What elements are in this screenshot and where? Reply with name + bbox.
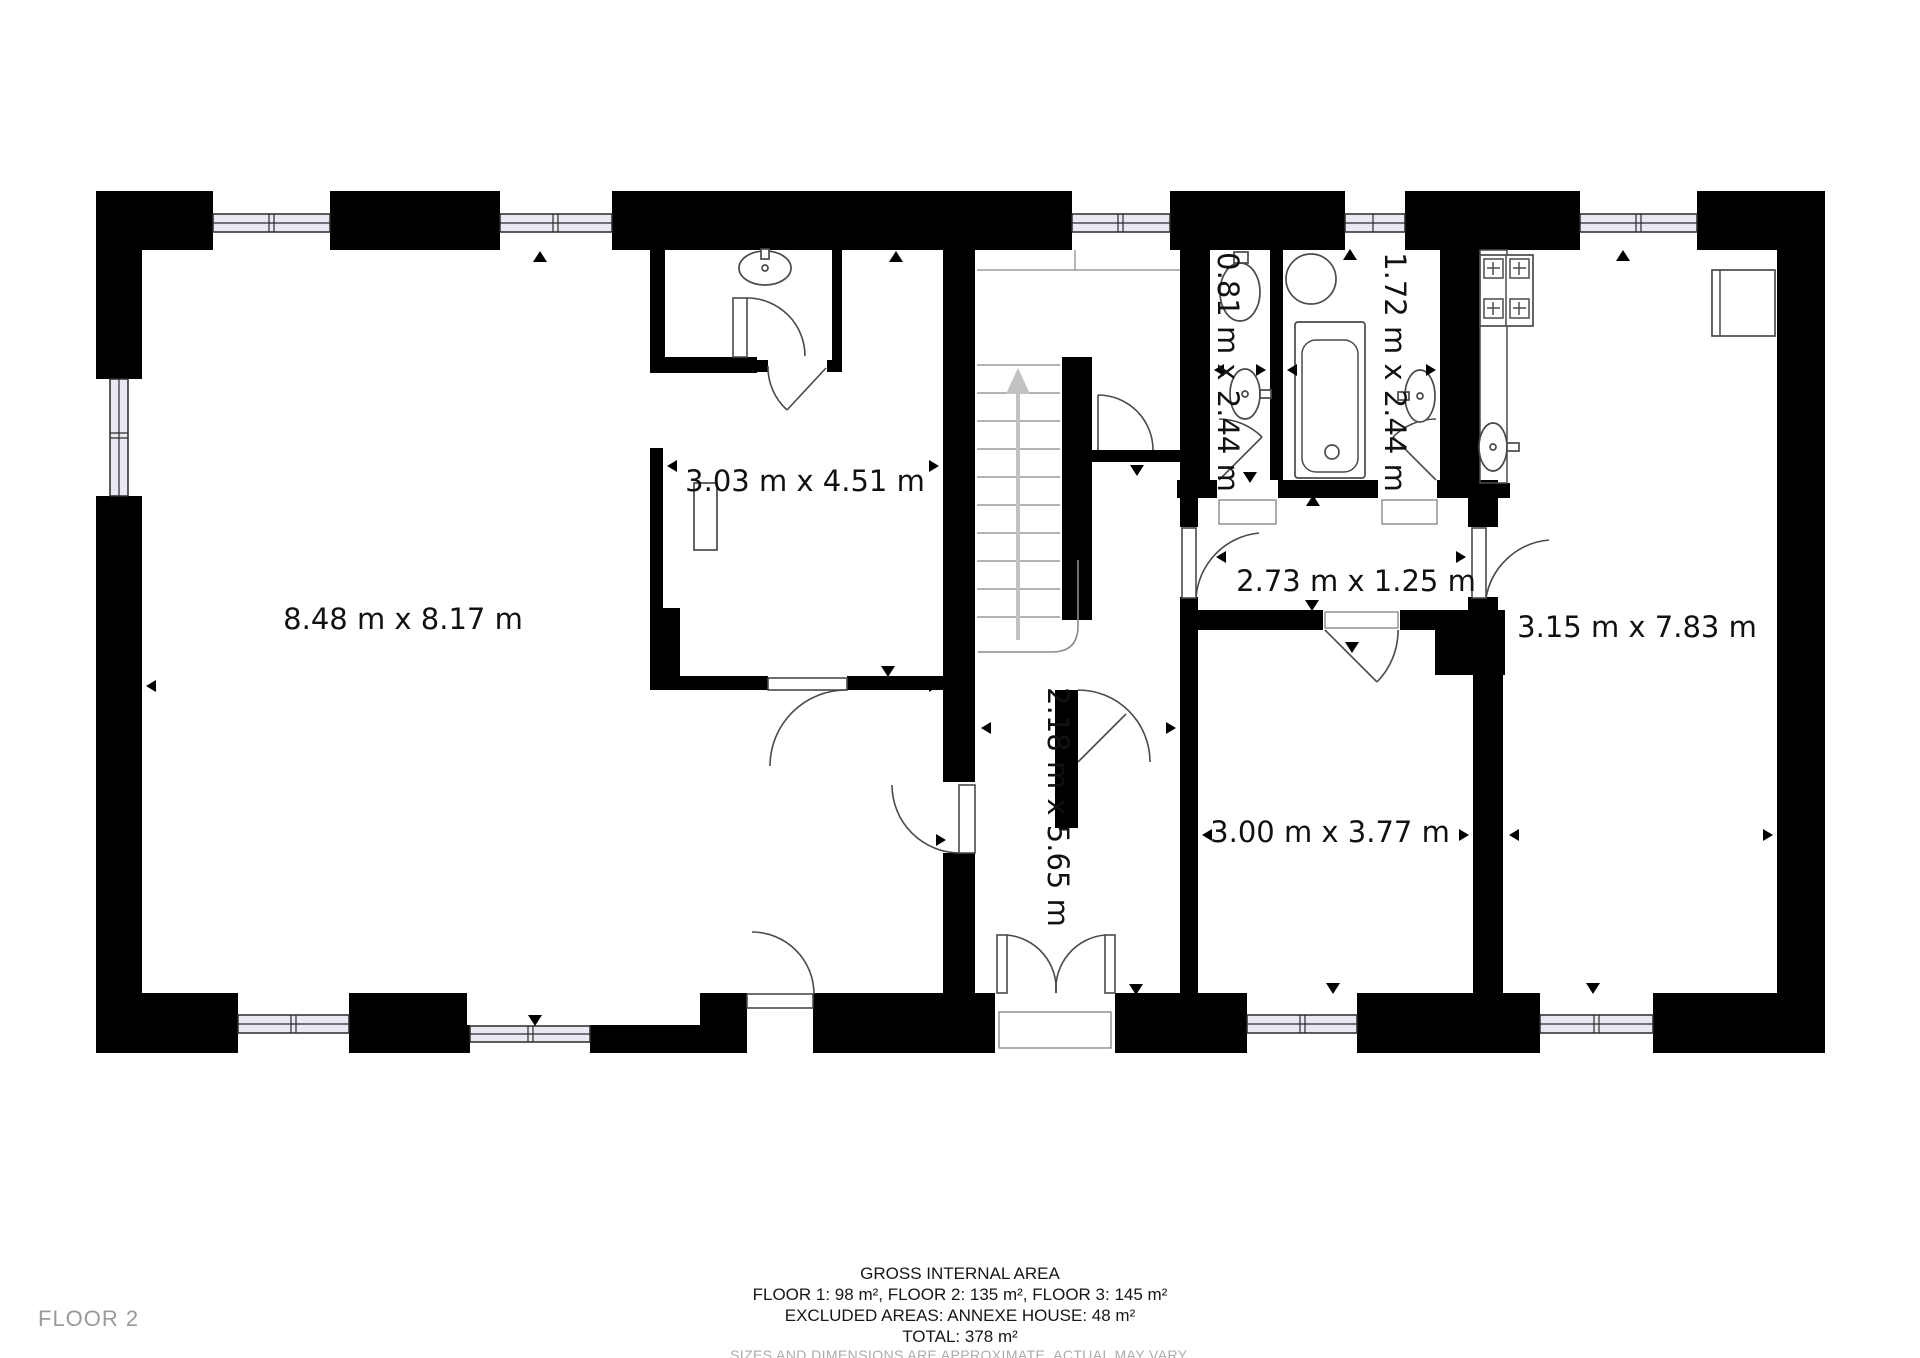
bathtub-icon: [1295, 322, 1365, 478]
floor-plan-page: 8.48 m x 8.17 m 3.03 m x 4.51 m 2.18 m x…: [0, 0, 1920, 1358]
room-label-kitchen: 3.15 m x 7.83 m: [1517, 610, 1757, 644]
summary-total: TOTAL: 378 m²: [0, 1326, 1920, 1347]
window: [500, 214, 612, 232]
sink-icon: [739, 249, 791, 285]
window: [1345, 214, 1405, 232]
door: [892, 785, 975, 853]
room-label-stairs: 2.18 m x 5.65 m: [1041, 687, 1075, 927]
window: [1072, 214, 1170, 232]
room-label-living: 8.48 m x 8.17 m: [283, 602, 523, 636]
stairs-up-arrow-icon: [1006, 368, 1030, 640]
summary-floors: FLOOR 1: 98 m², FLOOR 2: 135 m², FLOOR 3…: [0, 1284, 1920, 1305]
room-label-hallway: 2.73 m x 1.25 m: [1236, 564, 1476, 598]
summary-disclaimer: SIZES AND DIMENSIONS ARE APPROXIMATE, AC…: [0, 1347, 1920, 1358]
door: [1078, 690, 1150, 762]
room-label-bath: 1.72 m x 2.44 m: [1378, 252, 1412, 492]
window: [1247, 1015, 1357, 1033]
door: [768, 678, 847, 766]
door: [1472, 528, 1549, 598]
summary-title: GROSS INTERNAL AREA: [0, 1263, 1920, 1284]
room-label-wc: 0.81 m x 2.44 m: [1211, 252, 1245, 492]
shower-icon: [1286, 254, 1336, 304]
door: [1098, 395, 1153, 450]
desk: [1712, 270, 1775, 336]
window: [470, 1026, 590, 1042]
sink-icon: [1479, 423, 1519, 471]
door: [747, 932, 814, 1008]
window: [238, 1015, 349, 1033]
entry-double-door: [997, 935, 1115, 1048]
summary-excluded: EXCLUDED AREAS: ANNEXE HOUSE: 48 m²: [0, 1305, 1920, 1326]
stove-icon: [1480, 255, 1533, 326]
window: [110, 379, 128, 496]
door: [733, 298, 805, 357]
room-label-upper: 3.03 m x 4.51 m: [685, 464, 925, 498]
door: [1325, 612, 1398, 682]
window: [213, 214, 330, 232]
floor-plan-drawing: 8.48 m x 8.17 m 3.03 m x 4.51 m 2.18 m x…: [0, 0, 1920, 1358]
window: [1540, 1015, 1653, 1033]
floor-number-label: FLOOR 2: [38, 1306, 139, 1332]
door: [768, 366, 826, 410]
room-label-bedroom: 3.00 m x 3.77 m: [1210, 815, 1450, 849]
gross-internal-area-summary: GROSS INTERNAL AREA FLOOR 1: 98 m², FLOO…: [0, 1263, 1920, 1358]
window: [1580, 214, 1697, 232]
